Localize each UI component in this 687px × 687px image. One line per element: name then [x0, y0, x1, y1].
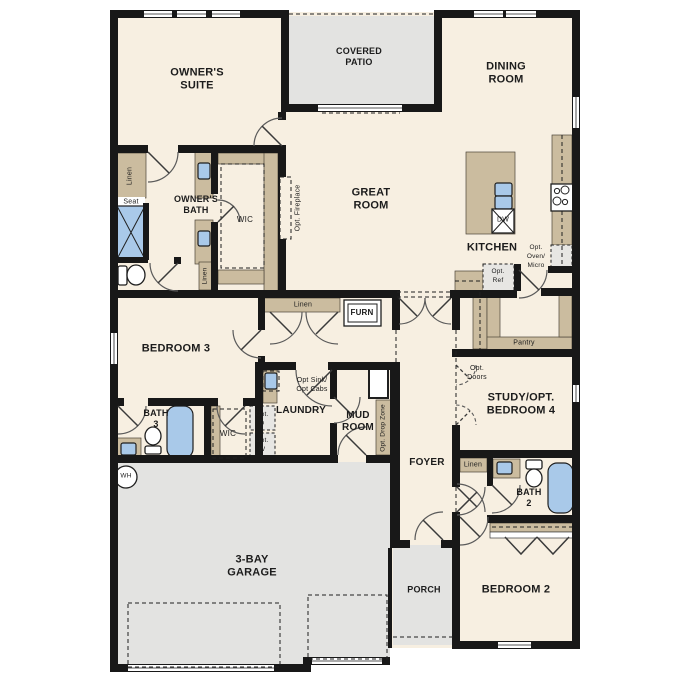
wic3-label: WIC: [220, 429, 236, 439]
linen-label-1: Linen: [125, 167, 134, 185]
bath-2-label: BATH 2: [516, 487, 541, 509]
owners-suite-label: OWNER'S SUITE: [170, 67, 224, 94]
opt-oven-micro-label: Opt. Oven/ Micro: [527, 244, 545, 270]
bath-3-label: BATH 3: [143, 408, 168, 430]
owners-bath-label: OWNER'S BATH: [174, 194, 218, 216]
linen-label-bath2: Linen: [464, 460, 482, 469]
opt-d-label: Opt. D: [255, 411, 268, 429]
labels-layer: OWNER'S SUITE COVERED PATIO DINING ROOM …: [0, 0, 687, 687]
foyer-label: FOYER: [409, 457, 444, 469]
porch-label: PORCH: [407, 585, 441, 596]
opt-drop-zone-label: Opt. Drop Zone: [380, 404, 389, 452]
pantry-label: Pantry: [513, 338, 534, 347]
bedroom-2-label: BEDROOM 2: [482, 583, 550, 596]
laundry-label: LAUNDRY: [276, 405, 326, 417]
opt-fireplace-label: Opt. Fireplace: [293, 185, 302, 232]
opt-w-label: Opt. W: [255, 437, 268, 455]
study-label: STUDY/OPT. BEDROOM 4: [487, 392, 555, 419]
dining-room-label: DINING ROOM: [486, 61, 526, 88]
kitchen-label: KITCHEN: [467, 241, 517, 254]
seat-label: Seat: [123, 197, 138, 206]
dw-label: DW: [497, 215, 509, 224]
floor-plan: OWNER'S SUITE COVERED PATIO DINING ROOM …: [0, 0, 687, 687]
opt-ref-label: Opt. Ref: [491, 268, 504, 286]
furn-label: FURN: [350, 308, 373, 318]
linen-label-hall: Linen: [294, 300, 312, 309]
covered-patio-label: COVERED PATIO: [336, 46, 382, 68]
opt-sink-cabs-label: Opt Sink/ Opt Cabs: [296, 376, 327, 394]
bedroom-3-label: BEDROOM 3: [142, 342, 210, 355]
linen-label-2: Linen: [202, 268, 211, 285]
wic-label: WIC: [237, 215, 253, 225]
opt-doors-label: Opt. Doors: [467, 364, 487, 382]
wh-label: WH: [120, 473, 131, 482]
great-room-label: GREAT ROOM: [352, 187, 391, 214]
garage-label: 3-BAY GARAGE: [227, 554, 276, 581]
mud-room-label: MUD ROOM: [342, 410, 374, 434]
